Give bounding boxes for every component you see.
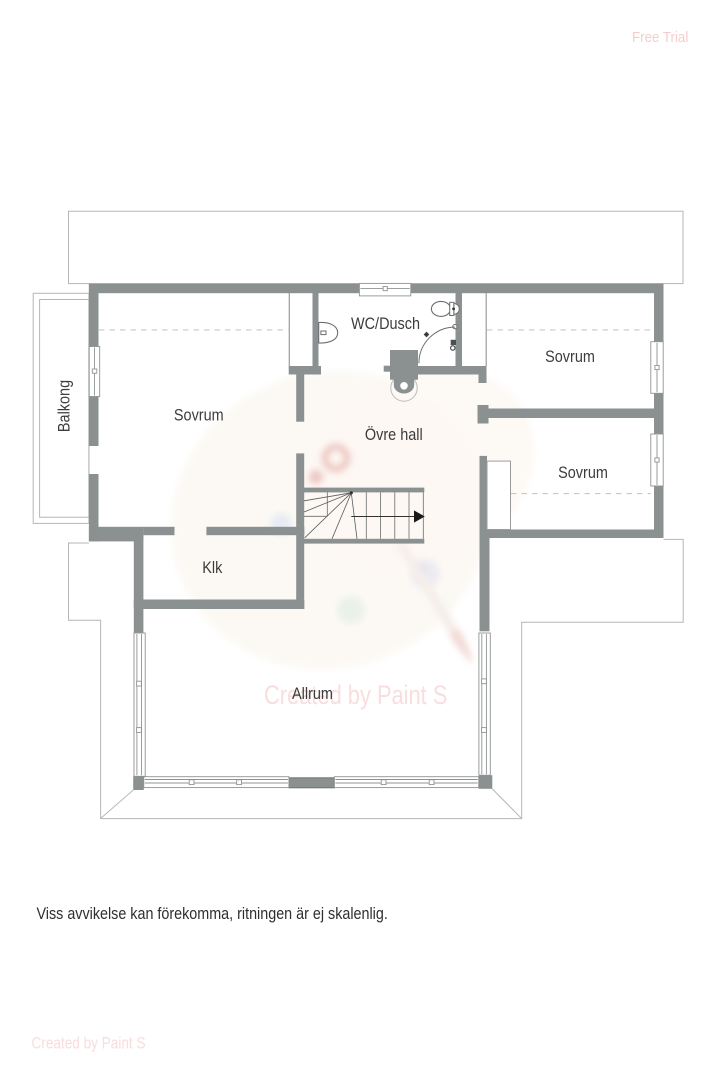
svg-text:Klk: Klk — [202, 559, 222, 577]
svg-text:Allrum: Allrum — [292, 685, 333, 703]
svg-text:Created by Paint S: Created by Paint S — [32, 1034, 146, 1053]
svg-text:WC/Dusch: WC/Dusch — [351, 315, 420, 333]
svg-text:Viss avvikelse kan förekomma,: Viss avvikelse kan förekomma, ritningen … — [37, 905, 388, 923]
svg-text:Sovrum: Sovrum — [558, 464, 608, 482]
svg-text:Sovrum: Sovrum — [545, 348, 595, 366]
svg-text:Free Trial: Free Trial — [632, 28, 688, 45]
svg-text:Balkong: Balkong — [55, 380, 73, 432]
svg-text:Övre hall: Övre hall — [365, 425, 423, 444]
svg-text:Sovrum: Sovrum — [174, 406, 224, 424]
